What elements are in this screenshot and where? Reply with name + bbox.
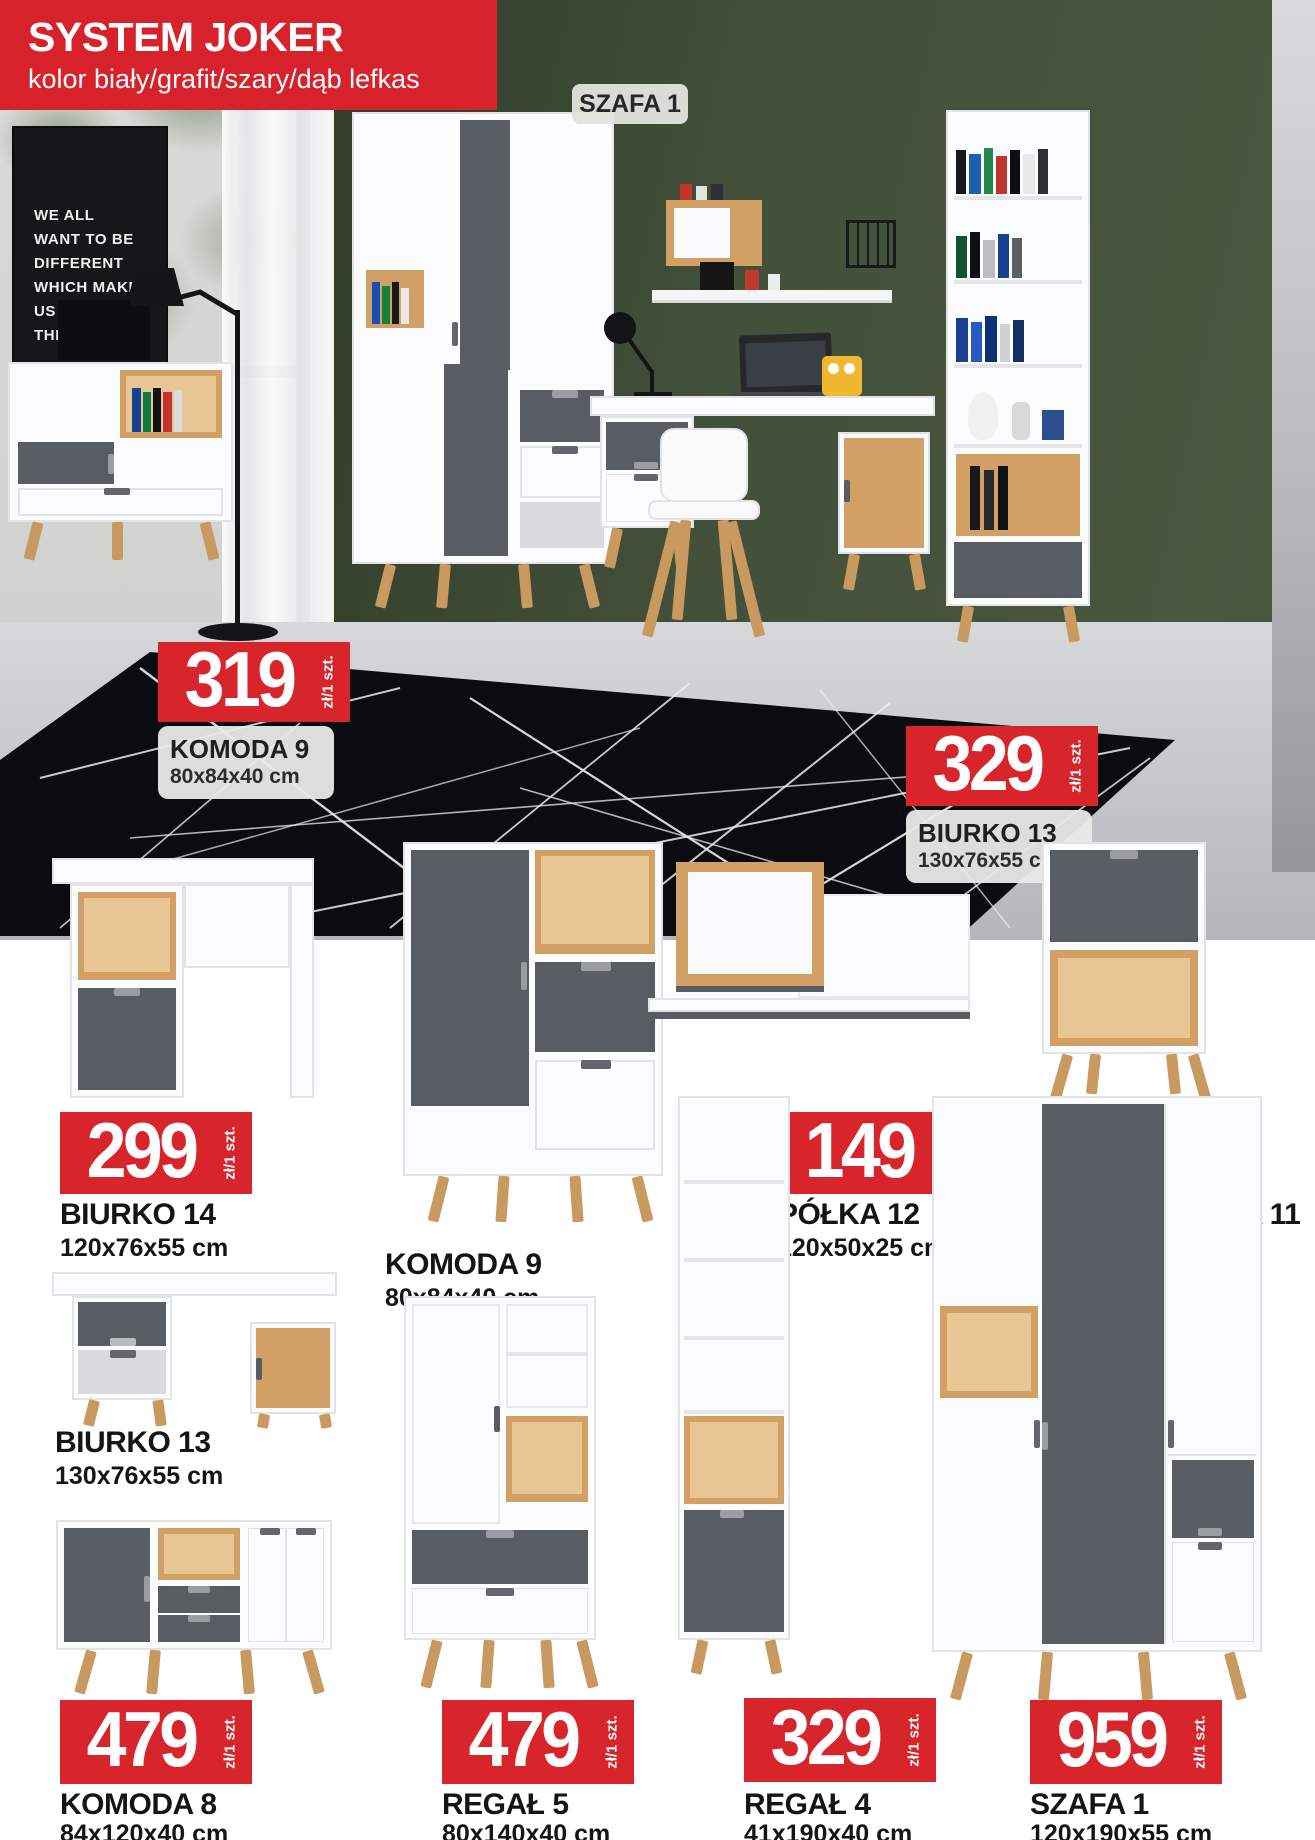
price-unit: zł/1 szt. bbox=[222, 1700, 239, 1784]
white-mug bbox=[768, 274, 780, 290]
desk-lamp bbox=[598, 306, 688, 398]
books-row bbox=[956, 230, 1080, 278]
price-badge-regal5: 479 zł/1 szt. bbox=[442, 1700, 634, 1784]
price-badge-regal4: 329 zł/1 szt. bbox=[744, 1698, 936, 1782]
room-photo: WE ALL WANT TO BE DIFFERENT WHICH MAKES … bbox=[0, 0, 1315, 940]
product-image-polka12 bbox=[648, 858, 970, 1058]
poster-line: WE ALL bbox=[34, 204, 150, 228]
catalog-page: WE ALL WANT TO BE DIFFERENT WHICH MAKES … bbox=[0, 0, 1315, 1840]
side-wall bbox=[1272, 0, 1315, 872]
price-badge-biurko14: 299 zł/1 szt. bbox=[60, 1112, 252, 1194]
red-pot bbox=[745, 270, 759, 290]
mini-house bbox=[711, 184, 723, 200]
product-image-komoda8 bbox=[52, 1512, 337, 1700]
price-value: 329 bbox=[912, 724, 1061, 802]
mini-house bbox=[696, 186, 707, 200]
owl-box bbox=[822, 356, 862, 396]
price-unit: zł/1 szt. bbox=[906, 1698, 923, 1782]
product-name-komoda8: KOMODA 8 bbox=[60, 1788, 217, 1822]
product-image-regal4 bbox=[650, 1090, 815, 1702]
product-image-szafka-nocna11 bbox=[1018, 826, 1228, 1112]
books-row bbox=[956, 146, 1080, 194]
book bbox=[970, 466, 980, 530]
mini-house bbox=[680, 184, 692, 200]
books-row bbox=[956, 314, 1080, 362]
product-label-komoda9: KOMODA 9 80x84x40 cm bbox=[158, 726, 334, 799]
product-name-biurko13: BIURKO 13 bbox=[55, 1426, 211, 1460]
bookcase-illustration bbox=[946, 110, 1090, 646]
vase bbox=[968, 392, 998, 440]
product-dims-komoda8: 84x120x40 cm bbox=[60, 1820, 228, 1840]
price-value: 319 bbox=[164, 640, 313, 718]
book bbox=[401, 288, 409, 324]
price-badge-biurko13: 329 zł/1 szt. bbox=[906, 726, 1098, 806]
price-value: 959 bbox=[1036, 1700, 1185, 1778]
product-dims: 80x84x40 cm bbox=[170, 764, 322, 789]
price-value: 329 bbox=[750, 1698, 899, 1776]
product-image-szafa1 bbox=[900, 1090, 1295, 1704]
series-colors: kolor biały/grafit/szary/dąb lefkas bbox=[28, 64, 420, 95]
price-unit: zł/1 szt. bbox=[1068, 724, 1085, 808]
book bbox=[392, 282, 399, 324]
book bbox=[998, 466, 1008, 530]
price-badge-komoda8: 479 zł/1 szt. bbox=[60, 1700, 252, 1784]
product-dims-regal5: 80x140x40 cm bbox=[442, 1820, 610, 1840]
product-name: KOMODA 9 bbox=[170, 734, 322, 764]
floor-lamp bbox=[130, 240, 300, 650]
book bbox=[382, 286, 390, 324]
price-value: 299 bbox=[66, 1111, 215, 1189]
price-unit: zł/1 szt. bbox=[604, 1700, 621, 1784]
book bbox=[372, 282, 380, 324]
price-value: 479 bbox=[66, 1700, 215, 1778]
product-image-regal5 bbox=[382, 1286, 617, 1702]
series-title: SYSTEM JOKER bbox=[28, 14, 343, 61]
price-unit: zł/1 szt. bbox=[222, 1111, 239, 1195]
wall-box-shelf bbox=[666, 200, 762, 266]
product-dims-szafa1: 120x190x55 cm bbox=[1030, 1820, 1212, 1840]
book bbox=[984, 470, 994, 530]
wire-basket bbox=[846, 220, 896, 268]
wardrobe-tag: SZAFA 1 bbox=[572, 84, 688, 124]
product-name-regal5: REGAŁ 5 bbox=[442, 1788, 569, 1822]
price-badge-szafa1: 959 zł/1 szt. bbox=[1030, 1700, 1222, 1784]
price-badge-komoda9: 319 zł/1 szt. bbox=[158, 642, 350, 722]
decor-cube bbox=[1042, 410, 1064, 440]
product-image-biurko13 bbox=[52, 1258, 337, 1432]
product-name-komoda9: KOMODA 9 bbox=[385, 1248, 542, 1282]
product-name-szafa1: SZAFA 1 bbox=[1030, 1788, 1149, 1822]
product-image-biurko14 bbox=[52, 838, 314, 1106]
series-banner: SYSTEM JOKER kolor biały/grafit/szary/dą… bbox=[0, 0, 497, 110]
product-name-biurko14: BIURKO 14 bbox=[60, 1198, 216, 1232]
price-unit: zł/1 szt. bbox=[1192, 1700, 1209, 1784]
product-image-komoda9 bbox=[375, 832, 690, 1232]
wardrobe-illustration bbox=[352, 112, 614, 612]
chair-illustration bbox=[636, 428, 771, 643]
books-on-shelf bbox=[700, 262, 734, 290]
price-value: 479 bbox=[448, 1700, 597, 1778]
price-unit: zł/1 szt. bbox=[320, 640, 337, 724]
product-dims-regal4: 41x190x40 cm bbox=[744, 1820, 912, 1840]
figurine bbox=[1012, 402, 1030, 440]
product-dims-biurko13: 130x76x55 cm bbox=[55, 1462, 223, 1491]
product-name-regal4: REGAŁ 4 bbox=[744, 1788, 871, 1822]
